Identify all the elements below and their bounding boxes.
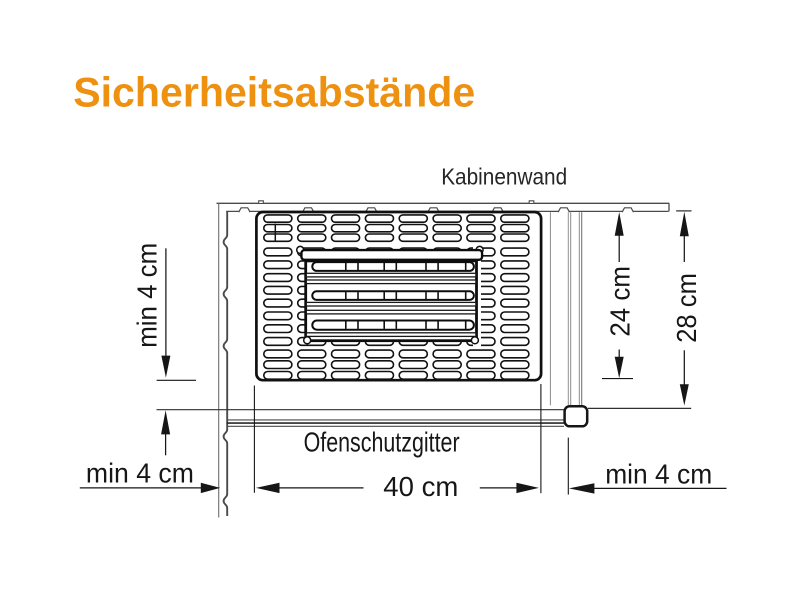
svg-text:Kabinenwand: Kabinenwand: [441, 164, 567, 190]
svg-text:24 cm: 24 cm: [605, 266, 636, 337]
svg-text:min 4 cm: min 4 cm: [605, 459, 712, 490]
svg-text:28 cm: 28 cm: [671, 273, 702, 343]
svg-text:min 4 cm: min 4 cm: [131, 243, 162, 348]
svg-text:Ofenschutzgitter: Ofenschutzgitter: [304, 426, 460, 457]
svg-text:Sicherheitsabstände: Sicherheitsabstände: [73, 68, 475, 115]
svg-text:min 4 cm: min 4 cm: [86, 457, 194, 488]
svg-text:40 cm: 40 cm: [383, 471, 458, 502]
